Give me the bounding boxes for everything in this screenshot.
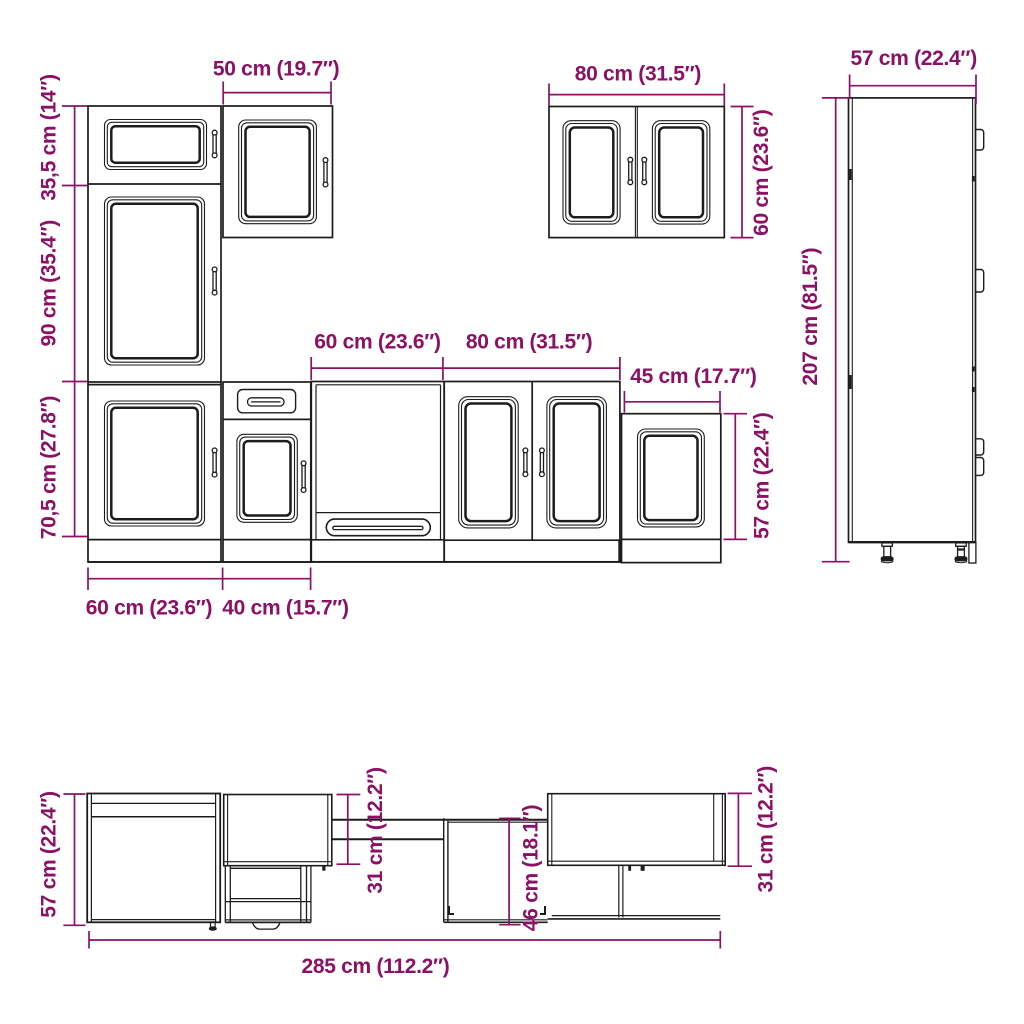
svg-text:57 cm (22.4″): 57 cm (22.4″) <box>751 413 774 539</box>
svg-text:45 cm (17.7″): 45 cm (17.7″) <box>630 365 756 388</box>
svg-text:70,5 cm (27.8″): 70,5 cm (27.8″) <box>38 396 61 539</box>
svg-text:35,5 cm (14″): 35,5 cm (14″) <box>38 74 61 200</box>
svg-text:60 cm (23.6″): 60 cm (23.6″) <box>750 109 773 235</box>
svg-text:50 cm (19.7″): 50 cm (19.7″) <box>213 58 339 81</box>
svg-text:31 cm (12.2″): 31 cm (12.2″) <box>755 766 778 892</box>
svg-text:40 cm (15.7″): 40 cm (15.7″) <box>222 597 348 620</box>
svg-text:90 cm (35.4″): 90 cm (35.4″) <box>38 220 61 346</box>
svg-text:31 cm (12.2″): 31 cm (12.2″) <box>364 767 387 893</box>
svg-text:60 cm (23.6″): 60 cm (23.6″) <box>314 331 440 354</box>
svg-text:285 cm (112.2″): 285 cm (112.2″) <box>302 955 450 978</box>
svg-text:207 cm (81.5″): 207 cm (81.5″) <box>799 248 822 386</box>
svg-text:60 cm (23.6″): 60 cm (23.6″) <box>86 597 212 620</box>
svg-text:80 cm (31.5″): 80 cm (31.5″) <box>575 63 701 86</box>
svg-text:80 cm (31.5″): 80 cm (31.5″) <box>466 331 592 354</box>
svg-text:57 cm (22.4″): 57 cm (22.4″) <box>850 47 976 70</box>
svg-text:46 cm (18.1″): 46 cm (18.1″) <box>520 805 543 931</box>
svg-text:57 cm (22.4″): 57 cm (22.4″) <box>38 791 61 917</box>
